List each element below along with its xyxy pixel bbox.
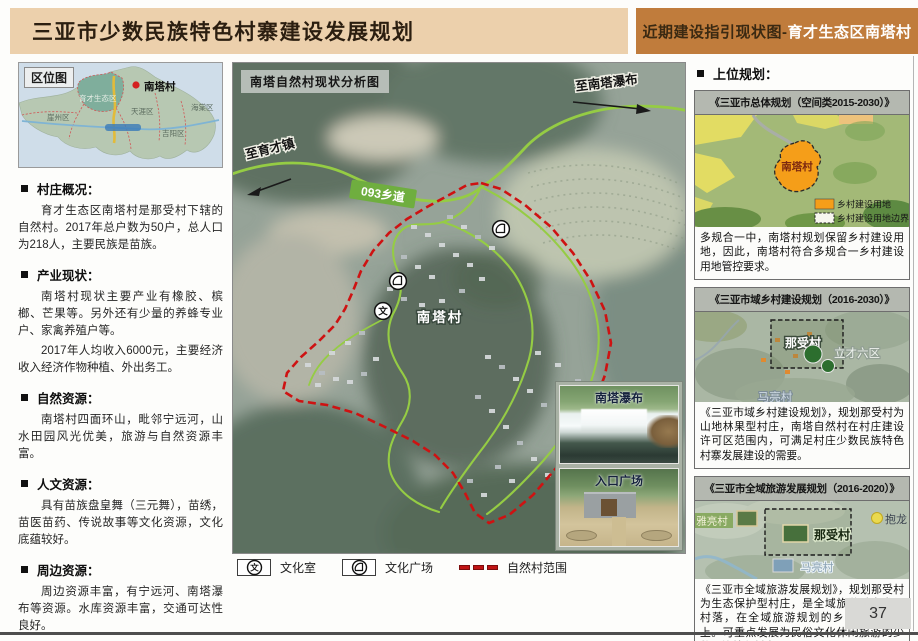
planning-document-page: 三亚市少数民族特色村寨建设发展规划 近期建设指引现状图-育才生态区南塔村 南塔村: [0, 0, 918, 641]
panel-title: 《三亚市总体规划（空间类2015-2030）》: [695, 91, 909, 115]
licai-district-label: 立才六区: [834, 346, 880, 360]
legend-label-landuse: 乡村建设用地: [837, 199, 891, 210]
plaza-path-art: [612, 517, 626, 546]
photo-inset-panel: 南塔瀑布 入口广场: [555, 381, 683, 551]
legend-label-culture-plaza: 文化广场: [385, 559, 433, 576]
page-number: 37: [845, 598, 911, 629]
panel-title: 《三亚市域乡村建设规划（2016-2030）》: [695, 288, 909, 312]
culture-plaza-legend-icon: [342, 559, 376, 576]
waterfall-art: [581, 409, 647, 432]
boundary-legend-icon: [459, 565, 498, 570]
section-title: 周边资源：: [37, 560, 100, 579]
photo-chip: [737, 511, 757, 526]
culture-plaza-icon: [493, 221, 510, 238]
plaza-planter-art: [641, 530, 672, 542]
culture-room-icon: 文: [375, 303, 392, 320]
village-name-label: 南塔村: [417, 309, 464, 325]
loc-region-yazhou: 崖州区: [47, 113, 70, 122]
waterfall-photo: 南塔瀑布: [559, 385, 679, 464]
panel-title: 《三亚市全域旅游发展规划（2016-2020）》: [695, 477, 909, 501]
industry-status-section: 产业现状： 南塔村现状主要产业有橡胶、槟榔、芒果等。另外还有少量的养蜂专业户、家…: [18, 265, 223, 377]
section-title: 产业现状：: [37, 265, 100, 284]
rural-construction-plan-panel: 《三亚市域乡村建设规划（2016-2030）》 那受村 立才六区 马亮村: [694, 287, 910, 469]
panel-text: 多规合一中，南塔村规划保留乡村建设用地，因此，南塔村符合多规合一乡村建设用地管控…: [695, 227, 909, 279]
legend-swatch-dashed: [815, 213, 834, 223]
plaza-photo: 入口广场: [559, 468, 679, 547]
plaza-building-art: [584, 492, 636, 518]
loc-highway-badge: [105, 124, 141, 131]
culture-plaza-icon: [390, 273, 407, 290]
master-plan-panel: 《三亚市总体规划（空间类2015-2030）》 南塔村 乡村建设用地: [694, 90, 910, 280]
left-sidebar: 南塔村 育才生态区 崖州区 天涯区 吉阳区 海棠区 区位图 村庄概况： 育才生态…: [18, 62, 223, 638]
section-tab-suffix: 育才生态区南塔村: [787, 21, 911, 42]
bullet-square: [697, 70, 704, 77]
nashou-photo-chip: [783, 525, 808, 542]
section-tab-prefix: 近期建设指引现状图-: [642, 21, 787, 42]
map-title: 南塔自然村现状分析图: [241, 70, 389, 93]
right-sidebar: 上位规划： 《三亚市总体规划（空间类2015-2030）》 南塔村: [694, 62, 910, 641]
section-paragraph: 南塔村现状主要产业有橡胶、槟榔、芒果等。另外还有少量的养蜂专业户、家禽养殖户等。: [18, 289, 223, 340]
legend-label-culture-room: 文化室: [280, 559, 316, 576]
loc-region-haitang: 海棠区: [191, 102, 214, 112]
section-paragraph: 2017年人均收入6000元，主要经济收入经济作物种植、外出务工。: [18, 343, 223, 377]
village-overview-section: 村庄概况： 育才生态区南塔村是那受村下辖的自然村。2017年总户数为50户，总人…: [18, 179, 223, 254]
loc-region-jiyang: 吉阳区: [162, 129, 185, 138]
natural-resources-section: 自然资源： 南塔村四面环山，毗邻宁远河，山水田园风光优美，旅游与自然资源丰富。: [18, 388, 223, 463]
page-title: 三亚市少数民族特色村寨建设发展规划: [32, 16, 415, 46]
cultural-resources-section: 人文资源： 具有苗族盘皇舞（三元舞），苗绣，苗医苗药、传说故事等文化资源，文化底…: [18, 474, 223, 549]
section-paragraph: 周边资源丰富，有宁远河、南塔瀑布等资源。水库资源丰富，交通可达性良好。: [18, 584, 223, 635]
upper-planning-heading: 上位规划：: [713, 64, 778, 83]
maliang-photo-chip: [773, 559, 793, 572]
nashou-label: 那受村: [814, 527, 850, 542]
legend-label-boundary: 自然村范围: [507, 559, 567, 576]
waterfall-photo-label: 南塔瀑布: [560, 389, 678, 406]
rural-plan-map: 那受村 立才六区 马亮村: [695, 312, 909, 402]
satellite-analysis-map: 至育才镇 至南塔瀑布 093乡道: [232, 62, 686, 554]
village-dot-small: [822, 359, 835, 372]
tourism-plan-map: 雅亮村 抱龙 那受村 马亮村: [695, 501, 909, 579]
rocks-art: [647, 415, 679, 447]
loc-road-yellow: [113, 76, 115, 143]
maliang-label: 马亮村: [758, 390, 793, 402]
bullet-square: [21, 480, 28, 487]
master-plan-map: 南塔村 乡村建设用地 乡村建设用地边界: [695, 115, 909, 227]
village-dot-large: [804, 345, 822, 363]
section-paragraph: 南塔村四面环山，毗邻宁远河，山水田园风光优美，旅游与自然资源丰富。: [18, 412, 223, 463]
yaliang-label: 雅亮村: [696, 514, 728, 527]
panel-text: 《三亚市域乡村建设规划》，规划那受村为山地林果型村庄，南塔自然村在村庄建设许可区…: [695, 402, 909, 468]
loc-region-tianya: 天涯区: [131, 107, 154, 116]
culture-room-legend-icon: 文: [237, 559, 271, 576]
baolong-label: 抱龙: [885, 512, 907, 526]
location-map: 南塔村 育才生态区 崖州区 天涯区 吉阳区 海棠区 区位图: [18, 62, 223, 168]
bullet-square: [21, 566, 28, 573]
plaza-photo-label: 入口广场: [560, 472, 678, 489]
svg-text:文: 文: [377, 306, 388, 318]
section-paragraph: 具有苗族盘皇舞（三元舞），苗绣，苗医苗药、传说故事等文化资源，文化底蕴较好。: [18, 498, 223, 549]
village-marker-dot: [132, 81, 139, 88]
bullet-square: [21, 271, 28, 278]
section-title: 人文资源：: [37, 474, 100, 493]
legend-swatch-orange: [815, 199, 834, 209]
header-title-bar: 三亚市少数民族特色村寨建设发展规划: [10, 8, 628, 54]
header-section-tab: 近期建设指引现状图-育才生态区南塔村: [636, 8, 918, 54]
legend-label-boundary2: 乡村建设用地边界: [837, 213, 909, 224]
section-title: 自然资源：: [37, 388, 100, 407]
baolong-icon: [872, 512, 883, 523]
surrounding-resources-section: 周边资源： 周边资源丰富，有宁远河、南塔瀑布等资源。水库资源丰富，交通可达性良好…: [18, 560, 223, 635]
svg-text:文: 文: [250, 563, 259, 573]
blob-village-label: 南塔村: [781, 160, 813, 173]
maliang-label: 马亮村: [801, 560, 834, 574]
section-title: 村庄概况：: [37, 179, 100, 198]
location-map-title: 区位图: [24, 67, 74, 88]
plaza-door-art: [601, 499, 617, 516]
map-legend: 文 文化室 文化广场 自然村范围: [237, 559, 567, 576]
loc-region-yucai: 育才生态区: [79, 93, 117, 103]
bullet-square: [21, 394, 28, 401]
plaza-planter-art: [566, 530, 597, 542]
section-paragraph: 育才生态区南塔村是那受村下辖的自然村。2017年总户数为50户，总人口为218人…: [18, 203, 223, 254]
bullet-square: [21, 185, 28, 192]
footer-rule: [0, 632, 918, 635]
right-edge-rule: [913, 56, 914, 631]
loc-marker-label: 南塔村: [144, 80, 176, 93]
